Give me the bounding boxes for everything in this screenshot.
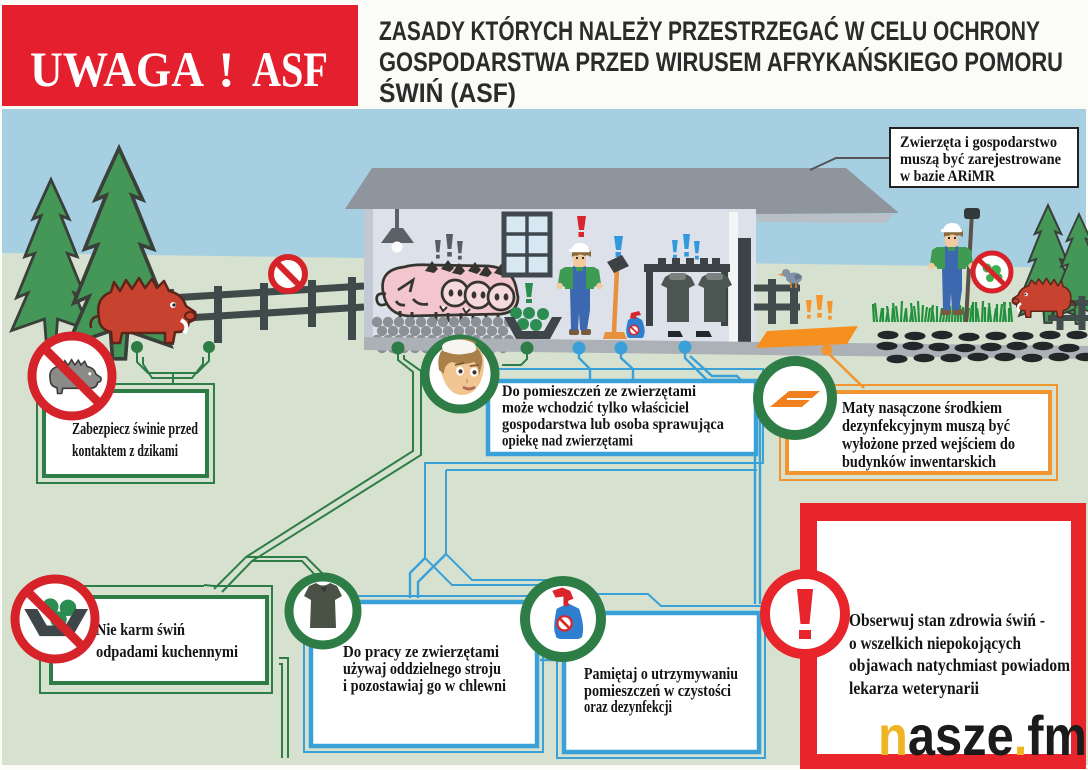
svg-text:Zabezpiecz świnie przed: Zabezpiecz świnie przed [72,419,198,438]
svg-text:objawach natychmiast powiadom: objawach natychmiast powiadom [849,655,1070,675]
svg-text:ZASADY KTÓRYCH NALEŻY PRZESTRZ: ZASADY KTÓRYCH NALEŻY PRZESTRZEGAĆ W CEL… [379,15,1040,46]
svg-text:Nie karm świń: Nie karm świń [96,620,185,639]
svg-text:odpadami kuchennymi: odpadami kuchennymi [96,642,238,661]
svg-text:Maty nasączone środkiem: Maty nasączone środkiem [842,398,1002,417]
svg-text:nasze.fm: nasze.fm [878,704,1087,767]
svg-text:oraz dezynfekcji: oraz dezynfekcji [584,697,672,716]
svg-text:UWAGA: UWAGA [30,41,204,97]
svg-text:dezynfekcyjnym muszą być: dezynfekcyjnym muszą być [842,416,1010,435]
svg-text:budynków inwentarskich: budynków inwentarskich [842,452,996,471]
svg-text:GOSPODARSTWA PRZED WIRUSEM AFR: GOSPODARSTWA PRZED WIRUSEM AFRYKAŃSKIEGO… [379,46,1063,77]
svg-text:!: ! [218,41,235,97]
svg-text:muszą być zarejestrowane: muszą być zarejestrowane [900,151,1061,168]
svg-text:w bazie ARiMR: w bazie ARiMR [900,168,995,185]
svg-text:Do pomieszczeń ze zwierzętami: Do pomieszczeń ze zwierzętami [502,383,697,400]
svg-text:opiekę nad zwierzętami: opiekę nad zwierzętami [502,433,634,450]
svg-text:o wszelkich niepokojących: o wszelkich niepokojących [849,633,1021,653]
svg-text:może wchodzić tylko właściciel: może wchodzić tylko właściciel [502,400,690,417]
svg-text:Zwierzęta i gospodarstwo: Zwierzęta i gospodarstwo [900,134,1057,151]
svg-text:lekarza weterynarii: lekarza weterynarii [849,678,979,698]
svg-text:ŚWIŃ (ASF): ŚWIŃ (ASF) [379,77,516,108]
svg-text:wyłożone przed wejściem do: wyłożone przed wejściem do [842,434,1015,453]
svg-text:gospodarstwa lub osoba sprawuj: gospodarstwa lub osoba sprawująca [502,416,724,433]
svg-text:ASF: ASF [252,41,328,97]
svg-text:kontaktem z dzikami: kontaktem z dzikami [72,441,178,460]
svg-text:Obserwuj stan zdrowia świń -: Obserwuj stan zdrowia świń - [849,610,1045,630]
svg-text:i pozostawiaj go w chlewni: i pozostawiaj go w chlewni [343,676,506,695]
